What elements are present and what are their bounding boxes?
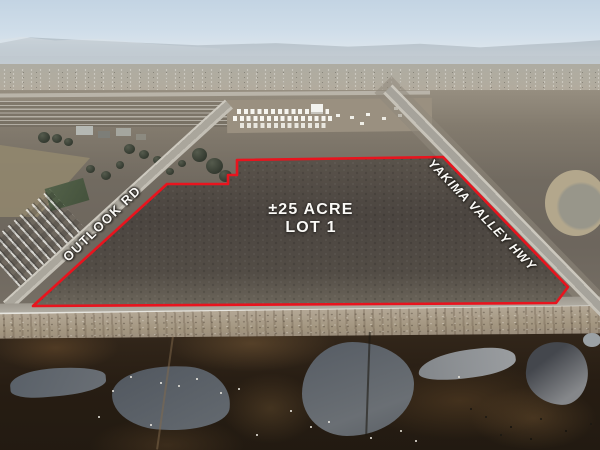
tree — [192, 148, 207, 162]
lot-number-text: LOT 1 — [241, 219, 381, 237]
lot-size-label: ±25 ACRE LOT 1 — [241, 201, 381, 237]
farm-building — [98, 131, 110, 138]
tree — [86, 165, 95, 173]
aerial-photo: ±25 ACRE LOT 1 OUTLOOK RD YAKIMA VALLEY … — [0, 0, 600, 450]
tree — [116, 161, 124, 169]
scattered-bins — [336, 114, 340, 117]
lot-acreage-text: ±25 ACRE — [241, 201, 381, 219]
white-bin-row — [233, 116, 333, 121]
tree — [178, 160, 186, 167]
farm-building — [116, 128, 131, 136]
tree — [64, 138, 73, 146]
tree — [166, 168, 174, 175]
white-birds — [160, 382, 162, 384]
vineyard-rows — [0, 101, 228, 127]
tree — [124, 144, 135, 154]
dark-birds — [470, 408, 472, 410]
farm-building — [76, 126, 93, 135]
tree — [139, 150, 149, 159]
tree — [226, 181, 235, 189]
farm-building — [311, 104, 323, 114]
tree — [38, 132, 50, 143]
farm-building — [136, 134, 146, 140]
tree — [101, 171, 111, 180]
tree — [52, 134, 62, 143]
dry-pond-feature — [545, 170, 600, 236]
white-bin-row — [240, 123, 328, 128]
pond — [583, 333, 600, 347]
